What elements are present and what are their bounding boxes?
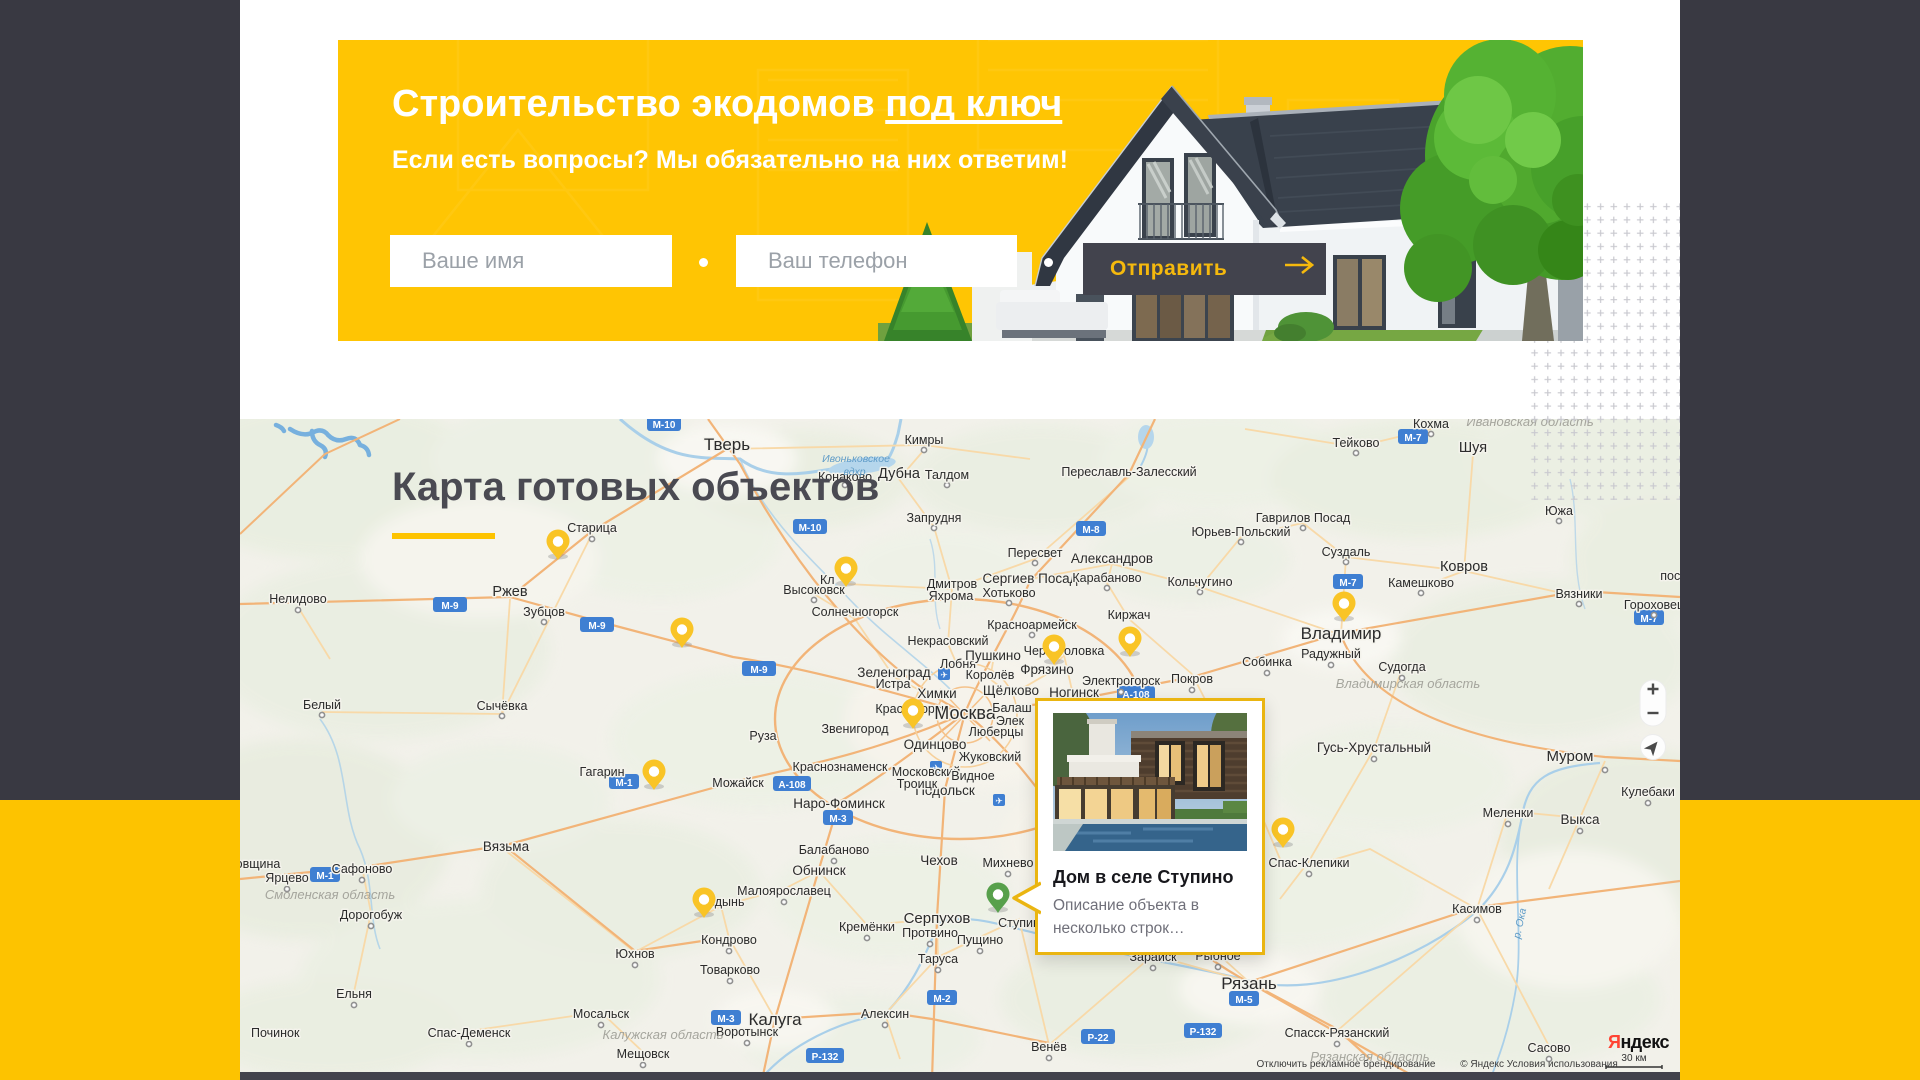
- svg-text:Гагарин: Гагарин: [579, 765, 624, 779]
- svg-text:Руза: Руза: [749, 729, 776, 743]
- svg-text:М-9: М-9: [441, 601, 459, 612]
- svg-text:Чехов: Чехов: [920, 853, 958, 868]
- svg-text:Яндекс: Яндекс: [1608, 1032, 1670, 1052]
- svg-text:Покров: Покров: [1171, 672, 1213, 686]
- svg-text:Кохма: Кохма: [1413, 419, 1449, 431]
- svg-text:А-108: А-108: [778, 780, 806, 791]
- svg-text:Гусь-Хрустальный: Гусь-Хрустальный: [1317, 740, 1431, 755]
- svg-text:Талдом: Талдом: [925, 468, 969, 482]
- svg-text:Гаврилов Посад: Гаврилов Посад: [1256, 511, 1351, 525]
- svg-text:Нелидово: Нелидово: [269, 592, 327, 606]
- svg-text:Выкса: Выкса: [1560, 812, 1600, 827]
- svg-text:Рязань: Рязань: [1221, 974, 1277, 993]
- svg-text:Пушкино: Пушкино: [965, 648, 1021, 663]
- svg-text:Электрогорск: Электрогорск: [1082, 674, 1160, 688]
- svg-text:Сергиев Посад: Сергиев Посад: [982, 571, 1077, 586]
- svg-text:Карабаново: Карабаново: [1072, 571, 1141, 585]
- svg-text:овщина: овщина: [240, 857, 280, 871]
- svg-text:М-1: М-1: [615, 778, 633, 789]
- svg-text:Ржев: Ржев: [492, 584, 527, 600]
- svg-text:М-10: М-10: [799, 523, 822, 534]
- svg-text:Краснознаменск: Краснознаменск: [793, 760, 888, 774]
- svg-text:Товарково: Товарково: [700, 963, 760, 977]
- svg-text:Камешково: Камешково: [1388, 576, 1454, 590]
- svg-text:Ельня: Ельня: [336, 987, 372, 1001]
- svg-text:Радужный: Радужный: [1301, 647, 1361, 661]
- svg-text:Переславль-Залесский: Переславль-Залесский: [1061, 465, 1196, 479]
- svg-text:Серпухов: Серпухов: [904, 910, 971, 927]
- svg-text:Некрасовский: Некрасовский: [908, 634, 989, 648]
- svg-text:Вязьма: Вязьма: [483, 839, 530, 854]
- svg-text:Королёв: Королёв: [966, 668, 1015, 682]
- svg-text:Алексин: Алексин: [861, 1007, 909, 1021]
- svg-text:Владимир: Владимир: [1301, 624, 1382, 643]
- svg-text:Гороховец: Гороховец: [1624, 598, 1680, 612]
- svg-text:Тейково: Тейково: [1333, 436, 1380, 450]
- svg-text:Пересвет: Пересвет: [1008, 546, 1063, 560]
- svg-text:М-9: М-9: [750, 665, 768, 676]
- svg-text:М-7: М-7: [1339, 578, 1357, 589]
- svg-text:Истра: Истра: [876, 677, 911, 691]
- svg-text:Р-132: Р-132: [1190, 1027, 1217, 1038]
- svg-text:Калужская область: Калужская область: [603, 1027, 724, 1042]
- svg-text:Судогда: Судогда: [1378, 660, 1425, 674]
- svg-text:М-8: М-8: [1082, 525, 1100, 536]
- svg-text:✈: ✈: [995, 796, 1003, 806]
- svg-text:Солнечногорск: Солнечногорск: [812, 605, 899, 619]
- svg-text:Кимры: Кимры: [905, 433, 944, 447]
- svg-text:Дорогобуж: Дорогобуж: [340, 908, 403, 922]
- svg-text:Смоленская область: Смоленская область: [265, 887, 396, 902]
- svg-text:Мосальск: Мосальск: [573, 1007, 630, 1021]
- svg-text:Обнинск: Обнинск: [792, 863, 845, 878]
- svg-text:Жуковский: Жуковский: [959, 750, 1021, 764]
- svg-text:Сафоново: Сафоново: [332, 862, 393, 876]
- svg-text:Юхнов: Юхнов: [615, 947, 655, 961]
- svg-text:✈: ✈: [940, 670, 948, 680]
- svg-text:Запрудня: Запрудня: [907, 511, 962, 525]
- svg-text:Муром: Муром: [1547, 748, 1594, 765]
- svg-text:Сычёвка: Сычёвка: [477, 699, 528, 713]
- svg-text:Кольчугино: Кольчугино: [1167, 575, 1232, 589]
- svg-text:Юрьев-Польский: Юрьев-Польский: [1192, 525, 1291, 539]
- svg-text:Собинка: Собинка: [1242, 655, 1292, 669]
- svg-text:Суздаль: Суздаль: [1322, 545, 1371, 559]
- svg-text:Южа: Южа: [1545, 504, 1573, 518]
- svg-text:Наро-Фоминск: Наро-Фоминск: [793, 796, 885, 811]
- svg-text:Балабаново: Балабаново: [799, 843, 870, 857]
- svg-text:Спасск-Рязанский: Спасск-Рязанский: [1285, 1026, 1390, 1040]
- svg-text:Кулебаки: Кулебаки: [1621, 785, 1675, 799]
- svg-text:Мещовск: Мещовск: [617, 1047, 670, 1061]
- svg-text:Киржач: Киржач: [1108, 608, 1151, 622]
- svg-text:М-2: М-2: [933, 994, 951, 1005]
- svg-text:М-9: М-9: [588, 621, 606, 632]
- svg-text:Таруса: Таруса: [918, 952, 958, 966]
- svg-text:Р-22: Р-22: [1087, 1033, 1109, 1044]
- svg-text:Пущино: Пущино: [957, 933, 1003, 947]
- svg-text:Тверь: Тверь: [704, 435, 750, 454]
- svg-text:Спас-Клепики: Спас-Клепики: [1269, 856, 1350, 870]
- svg-text:Шуя: Шуя: [1459, 440, 1487, 456]
- svg-text:Высоковск: Высоковск: [783, 583, 845, 597]
- svg-text:Троицк: Троицк: [897, 777, 938, 791]
- svg-text:М-3: М-3: [829, 814, 847, 825]
- svg-text:Москва: Москва: [934, 703, 996, 723]
- svg-text:Красноармейск: Красноармейск: [987, 618, 1077, 632]
- svg-text:Элек: Элек: [996, 714, 1025, 728]
- svg-text:Починок: Починок: [251, 1026, 300, 1040]
- svg-text:Р-132: Р-132: [812, 1052, 839, 1063]
- svg-text:Балаш: Балаш: [992, 701, 1031, 715]
- svg-text:Касимов: Касимов: [1452, 902, 1502, 916]
- svg-text:Щёлково: Щёлково: [983, 683, 1039, 698]
- svg-text:Ковров: Ковров: [1440, 559, 1488, 575]
- svg-text:Малоярославец: Малоярославец: [737, 884, 831, 898]
- svg-text:Венёв: Венёв: [1031, 1040, 1067, 1054]
- svg-text:Можайск: Можайск: [712, 776, 764, 790]
- svg-text:Михнево: Михнево: [983, 856, 1034, 870]
- svg-text:Кремёнки: Кремёнки: [839, 920, 895, 934]
- svg-text:Видное: Видное: [951, 769, 994, 783]
- svg-text:М-5: М-5: [1235, 995, 1253, 1006]
- svg-text:Александров: Александров: [1071, 551, 1153, 566]
- svg-text:Белый: Белый: [303, 698, 341, 712]
- svg-text:Спас-Деменск: Спас-Деменск: [428, 1026, 511, 1040]
- svg-text:Химки: Химки: [917, 686, 956, 701]
- svg-text:М-3: М-3: [717, 1014, 735, 1025]
- svg-text:Воротынск: Воротынск: [716, 1025, 779, 1039]
- svg-text:М-10: М-10: [653, 420, 676, 431]
- svg-text:Сасово: Сасово: [1528, 1041, 1571, 1055]
- svg-text:Дубна: Дубна: [878, 466, 921, 482]
- svg-text:Звенигород: Звенигород: [821, 722, 889, 736]
- svg-text:Фрязино: Фрязино: [1020, 662, 1074, 677]
- svg-text:Одинцово: Одинцово: [904, 737, 967, 752]
- svg-text:Кл: Кл: [820, 573, 835, 587]
- svg-text:Ивоньковское: Ивоньковское: [822, 453, 890, 465]
- svg-text:Владимирская область: Владимирская область: [1336, 676, 1481, 691]
- svg-text:Ярцево: Ярцево: [265, 871, 308, 885]
- svg-text:Хотьково: Хотьково: [982, 586, 1035, 600]
- svg-text:Кондрово: Кондрово: [701, 933, 757, 947]
- svg-text:30 км: 30 км: [1621, 1053, 1646, 1064]
- svg-text:Вязники: Вязники: [1555, 587, 1602, 601]
- svg-text:Яхрома: Яхрома: [929, 589, 974, 603]
- svg-text:пос.: пос.: [1660, 569, 1680, 583]
- svg-text:Старица: Старица: [567, 521, 617, 535]
- svg-text:© Яндекс Условия использования: © Яндекс Условия использования: [1460, 1059, 1618, 1070]
- svg-text:М-7: М-7: [1404, 433, 1422, 444]
- svg-text:Ступин: Ступин: [998, 916, 1040, 930]
- svg-text:Отключить рекламное брендирова: Отключить рекламное брендирование: [1257, 1058, 1436, 1070]
- svg-text:Меленки: Меленки: [1483, 806, 1534, 820]
- svg-text:Протвино: Протвино: [902, 926, 958, 940]
- svg-text:Зубцов: Зубцов: [523, 605, 565, 619]
